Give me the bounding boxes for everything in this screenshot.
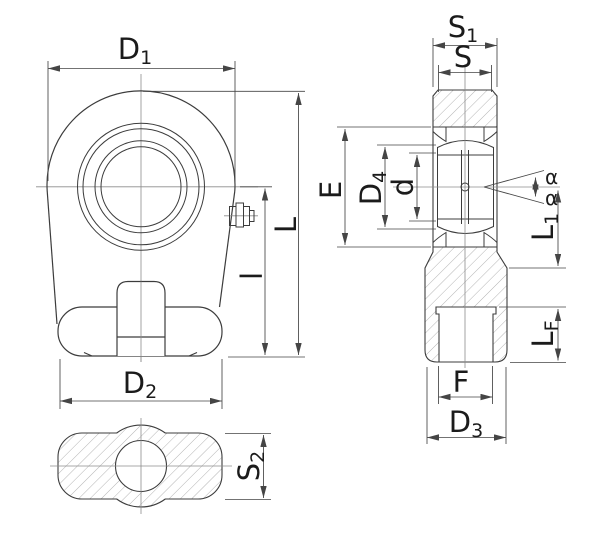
- inner-ring-lower-crescent: [438, 219, 494, 234]
- front-view: [36, 74, 258, 362]
- side-view: [393, 64, 560, 368]
- label-S2: S2: [232, 451, 269, 482]
- label-F: F: [453, 365, 470, 399]
- dim-D1: [48, 61, 235, 187]
- label-D1: D1: [118, 32, 152, 69]
- label-l: l: [235, 272, 269, 280]
- technical-drawing: D1 L l D2 S2 S1 S E D4 d α α L1 LF F D3: [0, 0, 601, 544]
- label-D2: D2: [123, 366, 157, 403]
- bottom-section-view: [50, 418, 232, 514]
- grease-fitting: [224, 203, 258, 227]
- label-E: E: [314, 181, 348, 199]
- label-alpha-lower: α: [545, 186, 558, 210]
- label-L: L: [269, 217, 303, 233]
- label-d: d: [386, 178, 420, 196]
- label-S: S: [454, 40, 472, 74]
- drawing-canvas: D1 L l D2 S2 S1 S E D4 d α α L1 LF F D3: [0, 0, 601, 544]
- head-right-taper: [220, 191, 235, 307]
- inner-ring-upper-crescent: [438, 141, 494, 156]
- label-D3: D3: [449, 405, 483, 442]
- head-left-taper: [47, 191, 57, 324]
- dim-l: [240, 187, 272, 355]
- label-LF: LF: [526, 320, 563, 347]
- bottom-centerlines: [50, 418, 232, 514]
- label-L1: L1: [526, 213, 563, 241]
